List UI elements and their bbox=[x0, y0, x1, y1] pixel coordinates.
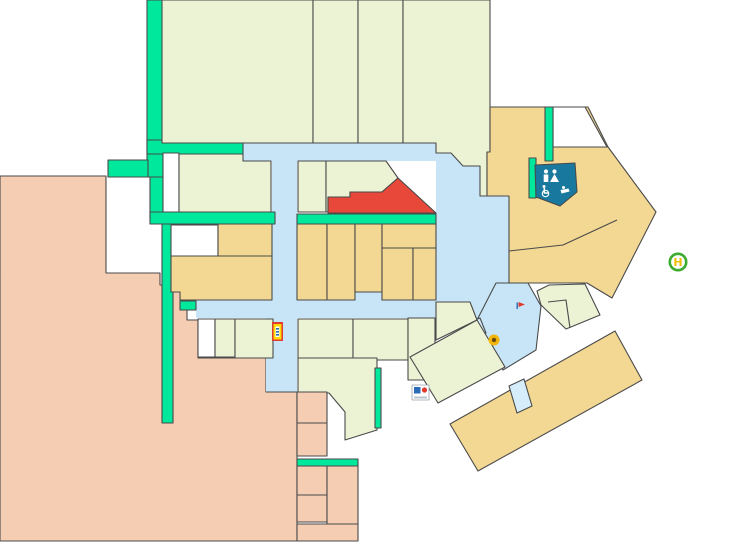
store-unit-20[interactable] bbox=[353, 319, 408, 360]
walkway-stem-upper bbox=[272, 158, 297, 305]
store-unit-north-3[interactable] bbox=[358, 0, 403, 143]
store-unit-6[interactable] bbox=[298, 161, 326, 212]
service-corridor-5 bbox=[150, 212, 275, 224]
store-unit-8[interactable] bbox=[218, 224, 272, 256]
store-unit-27[interactable] bbox=[297, 466, 327, 495]
store-unit-28[interactable] bbox=[297, 495, 327, 522]
info-sign-logo bbox=[414, 387, 421, 394]
service-corridor-2 bbox=[108, 160, 148, 177]
store-unit-11[interactable] bbox=[327, 224, 355, 300]
service-corridor-11 bbox=[375, 368, 381, 428]
store-unit-15[interactable] bbox=[413, 248, 436, 300]
store-unit-10[interactable] bbox=[297, 224, 327, 300]
service-corridor-9 bbox=[545, 107, 553, 161]
mens-restroom-icon bbox=[544, 169, 548, 173]
store-unit-29[interactable] bbox=[327, 466, 358, 524]
mall-floor-plan: H bbox=[0, 0, 750, 546]
store-unit-north-1[interactable] bbox=[162, 0, 313, 143]
mall-map-canvas: H bbox=[0, 0, 750, 546]
vacant-unit-2[interactable] bbox=[171, 225, 218, 256]
store-unit-9[interactable] bbox=[171, 256, 272, 300]
store-unit-26[interactable] bbox=[297, 423, 327, 456]
womens-restroom-icon bbox=[552, 169, 556, 173]
photo-booth-icon-stripe3 bbox=[276, 334, 279, 336]
info-sign-text-line bbox=[414, 397, 427, 399]
service-corridor-12 bbox=[297, 459, 358, 466]
service-corridor-8 bbox=[180, 301, 196, 310]
store-unit-14[interactable] bbox=[382, 248, 413, 300]
wheelchair-icon-head bbox=[543, 185, 546, 188]
photo-booth-icon-stripe1 bbox=[276, 328, 279, 330]
mens-restroom-icon-body bbox=[544, 175, 549, 183]
vacant-unit-1[interactable] bbox=[163, 153, 179, 212]
store-unit-north-2[interactable] bbox=[313, 0, 358, 143]
store-unit-30[interactable] bbox=[297, 524, 358, 541]
amenity-icon-glyph bbox=[492, 338, 496, 342]
store-unit-18[interactable] bbox=[235, 319, 273, 358]
store-unit-13[interactable] bbox=[382, 224, 436, 248]
photo-booth-icon-stripe2 bbox=[276, 331, 279, 333]
store-unit-25[interactable] bbox=[297, 392, 327, 423]
store-unit-16[interactable] bbox=[537, 284, 600, 329]
service-corridor-6 bbox=[297, 214, 436, 224]
flag-icon-pole bbox=[517, 303, 518, 310]
store-unit-5[interactable] bbox=[179, 154, 271, 212]
bus-stop-icon-letter: H bbox=[673, 256, 682, 269]
info-sign-dot bbox=[422, 387, 427, 392]
store-unit-19[interactable] bbox=[298, 319, 353, 358]
store-unit-12[interactable] bbox=[355, 224, 382, 292]
store-unit-17[interactable] bbox=[215, 319, 235, 357]
vacant-unit-3[interactable] bbox=[198, 319, 215, 357]
baby-change-icon-head bbox=[562, 186, 565, 189]
open-area-east bbox=[553, 107, 607, 147]
